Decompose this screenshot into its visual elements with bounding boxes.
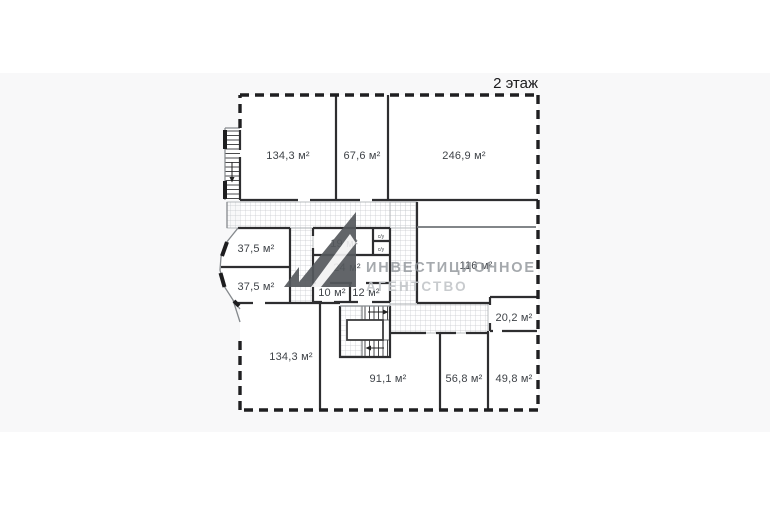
left-staircase [225, 128, 240, 200]
room-label-wc-bottom: с/у [378, 247, 385, 253]
watermark-line2: АГЕНТСТВО [366, 279, 468, 294]
central-staircase [340, 306, 390, 357]
floor-plan-svg: 134,3 м² 67,6 м² 246,9 м² 37,5 м² 37,5 м… [0, 0, 770, 510]
room-label-246: 246,9 м² [442, 150, 486, 162]
room-label-56: 56,8 м² [445, 373, 482, 385]
room-label-37-lower: 37,5 м² [237, 281, 274, 293]
room-label-134-bottom: 134,3 м² [269, 351, 313, 363]
floor-title: 2 этаж [493, 75, 538, 92]
room-label-37-upper: 37,5 м² [237, 243, 274, 255]
room-label-20: 20,2 м² [495, 312, 532, 324]
page: { "plan": { "floor_label": "2 этаж", "ro… [0, 0, 770, 510]
room-label-134-top: 134,3 м² [266, 150, 310, 162]
room-label-wc-top: с/у [378, 234, 385, 240]
watermark-line1: ИНВЕСТИЦИОННОЕ [366, 260, 536, 276]
room-label-91: 91,1 м² [369, 373, 406, 385]
room-label-67: 67,6 м² [343, 150, 380, 162]
room-label-10: 10 м² [318, 287, 346, 299]
room-label-49: 49,8 м² [495, 373, 532, 385]
